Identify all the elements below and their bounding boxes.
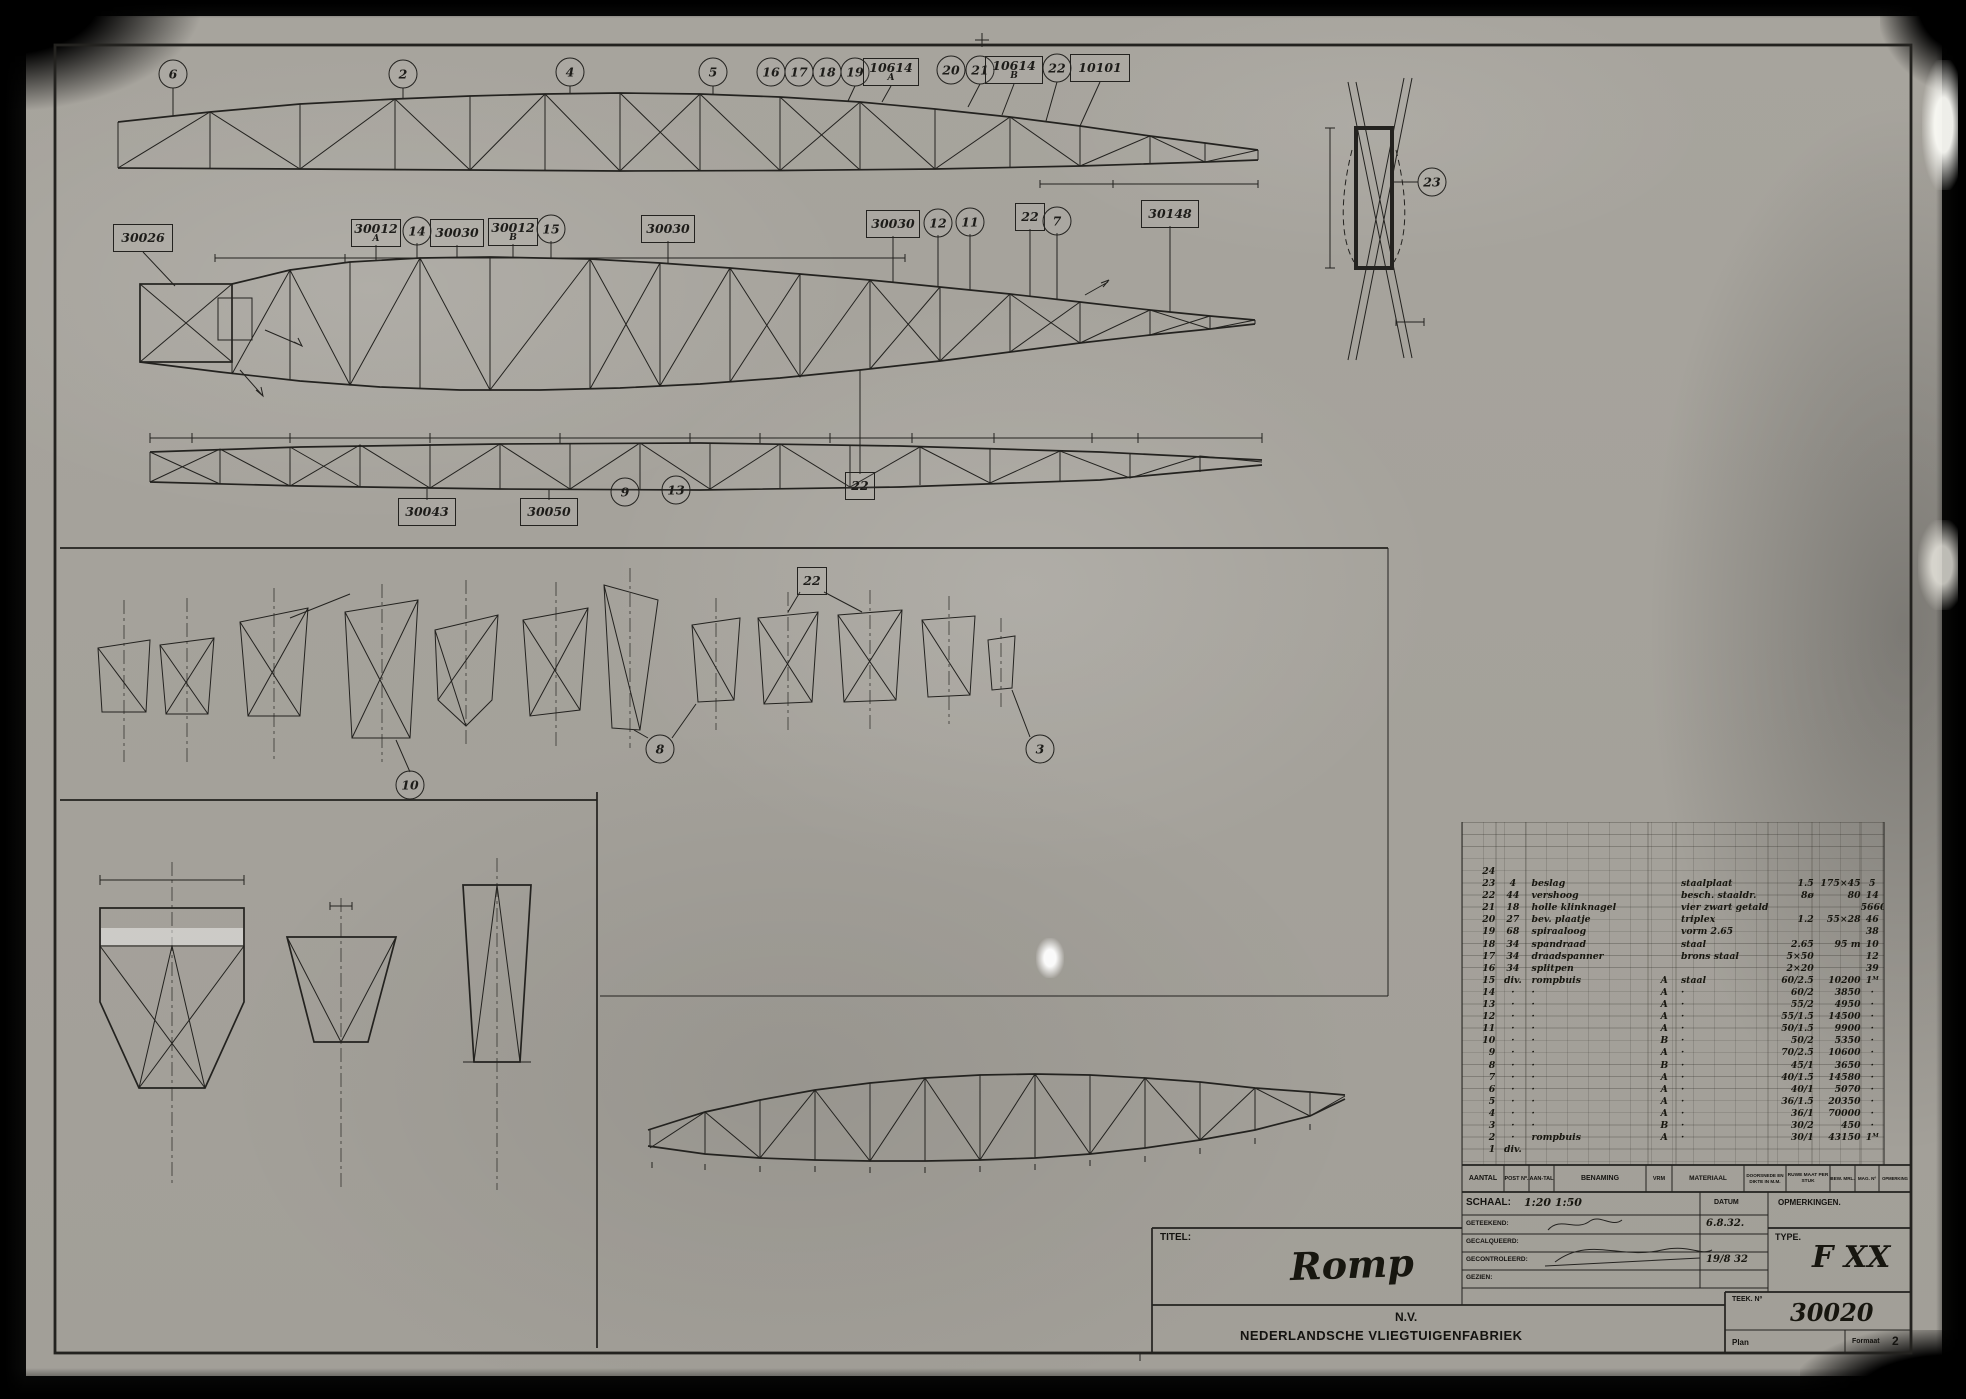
cell-benaming: bev. plaatje bbox=[1527, 914, 1650, 926]
cell-ruwe-maat: 9900 bbox=[1814, 1023, 1861, 1035]
part-callout: 30050 bbox=[520, 498, 578, 526]
cell-vorm bbox=[1651, 890, 1678, 902]
part-callout: 10614 A bbox=[863, 58, 919, 86]
cell-vorm: A bbox=[1651, 1047, 1678, 1059]
callout-number: 22 bbox=[851, 480, 868, 492]
cell-benaming: · bbox=[1527, 1108, 1650, 1120]
type-label: TYPE. bbox=[1775, 1232, 1801, 1242]
cell-ruwe-maat: 450 bbox=[1814, 1120, 1861, 1132]
cell-mag-no: · bbox=[1861, 1108, 1884, 1120]
cell-materiaal: staalplaat bbox=[1678, 878, 1771, 890]
callout-number: 7 bbox=[1053, 215, 1062, 227]
cell-mag-no: · bbox=[1861, 1084, 1884, 1096]
cell-post-no: 22 bbox=[1462, 890, 1498, 902]
part-callout: 18 bbox=[813, 58, 842, 87]
cell-mag-no bbox=[1861, 866, 1884, 878]
truss-plan-view bbox=[150, 433, 1262, 490]
cell-aantal: · bbox=[1498, 1072, 1527, 1084]
callout-number: 8 bbox=[656, 743, 665, 755]
cell-doorsnede: 2×20 bbox=[1771, 963, 1814, 975]
cell-doorsnede: 8ø bbox=[1771, 890, 1814, 902]
cell-post-no: 9 bbox=[1462, 1047, 1498, 1059]
cell-benaming: · bbox=[1527, 1072, 1650, 1084]
part-callout: 16 bbox=[757, 58, 786, 87]
callout-number: 17 bbox=[790, 66, 807, 78]
callout-suffix: B bbox=[1010, 72, 1018, 80]
cell-materiaal: besch. staaldr. bbox=[1678, 890, 1771, 902]
cell-aantal bbox=[1498, 866, 1527, 878]
table-row: 19 68 spiraaloog vorm 2.65 38 bbox=[1462, 926, 1884, 938]
cell-post-no: 11 bbox=[1462, 1023, 1498, 1035]
cell-benaming: · bbox=[1527, 1120, 1650, 1132]
cell-benaming: rompbuis bbox=[1527, 975, 1650, 987]
cell-mag-no: · bbox=[1861, 999, 1884, 1011]
col-header: MAG. Nº bbox=[1855, 1165, 1879, 1192]
cell-ruwe-maat bbox=[1814, 963, 1861, 975]
cell-aantal: 44 bbox=[1498, 890, 1527, 902]
cell-vorm: A bbox=[1651, 1108, 1678, 1120]
cell-vorm: A bbox=[1651, 1096, 1678, 1108]
callout-number: 10 bbox=[401, 779, 418, 791]
cell-materiaal bbox=[1678, 1144, 1771, 1156]
cell-doorsnede bbox=[1771, 1144, 1814, 1156]
part-callout: 30043 bbox=[398, 498, 456, 526]
table-row: 4 · · A · 36/1 70000 · bbox=[1462, 1108, 1884, 1120]
cell-aantal: · bbox=[1498, 1120, 1527, 1132]
cell-post-no: 5 bbox=[1462, 1096, 1498, 1108]
callout-number: 4 bbox=[566, 66, 575, 78]
cell-benaming: holle klinknagel bbox=[1527, 902, 1650, 914]
cell-materiaal: · bbox=[1678, 1011, 1771, 1023]
part-callout: 5 bbox=[699, 58, 728, 87]
teek-no-label: TEEK. Nº bbox=[1732, 1296, 1762, 1303]
cell-ruwe-maat bbox=[1814, 902, 1861, 914]
cell-benaming: · bbox=[1527, 1023, 1650, 1035]
cell-doorsnede bbox=[1771, 902, 1814, 914]
cell-ruwe-maat: 80 bbox=[1814, 890, 1861, 902]
cell-aantal: div. bbox=[1498, 1144, 1527, 1156]
cell-mag-no: 38 bbox=[1861, 926, 1884, 938]
cell-mag-no: · bbox=[1861, 1011, 1884, 1023]
gecalqueerd-label: GECALQUEERD: bbox=[1466, 1238, 1519, 1245]
part-callout: 22 bbox=[1015, 203, 1045, 231]
cell-materiaal: staal bbox=[1678, 975, 1771, 987]
cell-aantal: · bbox=[1498, 1096, 1527, 1108]
table-row: 1 div. bbox=[1462, 1144, 1884, 1156]
callout-number: 23 bbox=[1423, 176, 1440, 188]
callout-number: 30043 bbox=[405, 506, 449, 518]
parts-table: 24 23 4 beslag staalplaat 1.5 175×45 5 2… bbox=[1462, 866, 1884, 1156]
cell-post-no: 10 bbox=[1462, 1035, 1498, 1047]
part-callout: 17 bbox=[785, 58, 814, 87]
cell-mag-no: 5660 bbox=[1861, 902, 1884, 914]
col-header: MATERIAAL bbox=[1672, 1165, 1744, 1192]
cell-ruwe-maat bbox=[1814, 1144, 1861, 1156]
cell-materiaal: · bbox=[1678, 1060, 1771, 1072]
callout-number: 15 bbox=[542, 223, 559, 235]
part-callout: 30030 bbox=[866, 210, 920, 238]
cell-benaming: · bbox=[1527, 1011, 1650, 1023]
callout-number: 19 bbox=[846, 66, 863, 78]
table-row: 5 · · A · 36/1.5 20350 · bbox=[1462, 1096, 1884, 1108]
cell-post-no: 23 bbox=[1462, 878, 1498, 890]
cell-post-no: 3 bbox=[1462, 1120, 1498, 1132]
callout-suffix: B bbox=[509, 234, 517, 242]
cell-post-no: 19 bbox=[1462, 926, 1498, 938]
titel-value: Romp bbox=[1289, 1240, 1414, 1289]
callout-number: 30030 bbox=[646, 223, 690, 235]
cell-vorm bbox=[1651, 914, 1678, 926]
part-callout: 30012 A bbox=[351, 219, 401, 247]
table-row: 21 18 holle klinknagel vier zwart getald… bbox=[1462, 902, 1884, 914]
callout-number: 30030 bbox=[871, 218, 915, 230]
cell-doorsnede bbox=[1771, 926, 1814, 938]
cell-mag-no: 14 bbox=[1861, 890, 1884, 902]
cell-post-no: 13 bbox=[1462, 999, 1498, 1011]
cell-materiaal: · bbox=[1678, 1084, 1771, 1096]
part-callout: 9 bbox=[611, 478, 640, 507]
callout-number: 30050 bbox=[527, 506, 571, 518]
cell-benaming bbox=[1527, 1144, 1650, 1156]
cell-doorsnede: 55/1.5 bbox=[1771, 1011, 1814, 1023]
part-callout: 30012 B bbox=[488, 218, 538, 246]
cell-materiaal bbox=[1678, 963, 1771, 975]
part-callout: 2 bbox=[389, 60, 418, 89]
cell-vorm bbox=[1651, 1144, 1678, 1156]
part-callout: 3 bbox=[1026, 735, 1055, 764]
table-row: 17 34 draadspanner brons staal 5×50 12 bbox=[1462, 951, 1884, 963]
cell-aantal: 68 bbox=[1498, 926, 1527, 938]
part-callout: 22 bbox=[845, 472, 875, 500]
cell-aantal: · bbox=[1498, 1132, 1527, 1144]
cell-doorsnede: 70/2.5 bbox=[1771, 1047, 1814, 1059]
callout-number: 5 bbox=[709, 66, 718, 78]
part-callout: 10101 bbox=[1070, 54, 1130, 82]
section-c-spanten bbox=[100, 858, 531, 1190]
cell-benaming: · bbox=[1527, 1035, 1650, 1047]
cell-ruwe-maat: 10600 bbox=[1814, 1047, 1861, 1059]
cell-benaming: beslag bbox=[1527, 878, 1650, 890]
cell-benaming: splitpen bbox=[1527, 963, 1650, 975]
cell-benaming: · bbox=[1527, 1096, 1650, 1108]
cell-doorsnede: 30/2 bbox=[1771, 1120, 1814, 1132]
cell-ruwe-maat: 3650 bbox=[1814, 1060, 1861, 1072]
part-callout: 23 bbox=[1418, 168, 1447, 197]
cell-doorsnede: 36/1.5 bbox=[1771, 1096, 1814, 1108]
cell-aantal: 27 bbox=[1498, 914, 1527, 926]
cell-vorm: B bbox=[1651, 1060, 1678, 1072]
callout-number: 18 bbox=[818, 66, 835, 78]
cell-vorm bbox=[1651, 951, 1678, 963]
cell-aantal: · bbox=[1498, 1035, 1527, 1047]
cell-vorm bbox=[1651, 866, 1678, 878]
part-callout: 30030 bbox=[641, 215, 695, 243]
cell-doorsnede: 50/2 bbox=[1771, 1035, 1814, 1047]
truss-main-side-view bbox=[140, 226, 1255, 500]
cell-vorm bbox=[1651, 902, 1678, 914]
callout-suffix: A bbox=[888, 74, 895, 82]
cell-benaming: · bbox=[1527, 987, 1650, 999]
cell-post-no: 21 bbox=[1462, 902, 1498, 914]
cell-aantal: · bbox=[1498, 999, 1527, 1011]
table-row: 15 div. rompbuis A staal 60/2.5 10200 1ᴹ bbox=[1462, 975, 1884, 987]
cell-doorsnede: 1.5 bbox=[1771, 878, 1814, 890]
col-header: OPMERKING bbox=[1879, 1165, 1911, 1192]
photo-background: 24 23 4 beslag staalplaat 1.5 175×45 5 2… bbox=[0, 0, 1966, 1399]
col-header: RUWE MAAT PER STUK bbox=[1786, 1165, 1830, 1192]
part-callout: 20 bbox=[937, 56, 966, 85]
table-row: 18 34 spandraad staal 2.65 95 m 10 bbox=[1462, 939, 1884, 951]
cell-aantal: · bbox=[1498, 987, 1527, 999]
cell-ruwe-maat: 5070 bbox=[1814, 1084, 1861, 1096]
callout-number: 30148 bbox=[1148, 208, 1192, 220]
col-header: BEW. MRL. bbox=[1830, 1165, 1855, 1192]
cell-ruwe-maat: 14500 bbox=[1814, 1011, 1861, 1023]
part-callout: 30026 bbox=[113, 224, 173, 252]
cell-materiaal: triplex bbox=[1678, 914, 1771, 926]
cell-vorm bbox=[1651, 939, 1678, 951]
cell-aantal: 34 bbox=[1498, 963, 1527, 975]
cell-benaming: rompbuis bbox=[1527, 1132, 1650, 1144]
callout-number: 22 bbox=[1048, 62, 1065, 74]
callout-number: 16 bbox=[762, 66, 779, 78]
cell-vorm: A bbox=[1651, 999, 1678, 1011]
callout-number: 9 bbox=[621, 486, 630, 498]
section-b-frames bbox=[98, 568, 1030, 772]
cell-benaming: spandraad bbox=[1527, 939, 1650, 951]
cell-benaming: · bbox=[1527, 1047, 1650, 1059]
cell-benaming: · bbox=[1527, 999, 1650, 1011]
cell-doorsnede: 2.65 bbox=[1771, 939, 1814, 951]
cell-materiaal: vier zwart getald bbox=[1678, 902, 1771, 914]
table-row: 16 34 splitpen 2×20 39 bbox=[1462, 963, 1884, 975]
cell-mag-no: 1ᴹ bbox=[1861, 1132, 1884, 1144]
callout-number: 13 bbox=[667, 484, 684, 496]
table-row: 14 · · A · 60/2 3850 · bbox=[1462, 987, 1884, 999]
cell-mag-no: · bbox=[1861, 1072, 1884, 1084]
schaal-label: SCHAAL: bbox=[1466, 1197, 1511, 1208]
cell-aantal: · bbox=[1498, 1023, 1527, 1035]
table-row: 24 bbox=[1462, 866, 1884, 878]
titel-label: TITEL: bbox=[1160, 1232, 1191, 1243]
cell-post-no: 8 bbox=[1462, 1060, 1498, 1072]
cell-ruwe-maat: 95 m bbox=[1814, 939, 1861, 951]
cell-materiaal: · bbox=[1678, 1047, 1771, 1059]
table-row: 10 · · B · 50/2 5350 · bbox=[1462, 1035, 1884, 1047]
cell-ruwe-maat: 175×45 bbox=[1814, 878, 1861, 890]
cell-benaming: draadspanner bbox=[1527, 951, 1650, 963]
cell-mag-no: 39 bbox=[1861, 963, 1884, 975]
cell-vorm: A bbox=[1651, 1011, 1678, 1023]
table-row: 2 · rompbuis A · 30/1 43150 1ᴹ bbox=[1462, 1132, 1884, 1144]
part-callout: 10 bbox=[396, 771, 425, 800]
cell-mag-no: · bbox=[1861, 1035, 1884, 1047]
cell-materiaal bbox=[1678, 866, 1771, 878]
cell-vorm: A bbox=[1651, 975, 1678, 987]
cell-ruwe-maat: 3850 bbox=[1814, 987, 1861, 999]
cell-vorm: A bbox=[1651, 1132, 1678, 1144]
table-row: 7 · · A · 40/1.5 14580 · bbox=[1462, 1072, 1884, 1084]
col-header: AAN-TAL bbox=[1529, 1165, 1554, 1192]
cell-vorm: B bbox=[1651, 1120, 1678, 1132]
company-name: NEDERLANDSCHE VLIEGTUIGENFABRIEK bbox=[1240, 1328, 1523, 1343]
cell-post-no: 2 bbox=[1462, 1132, 1498, 1144]
cell-vorm bbox=[1651, 878, 1678, 890]
datum-label: DATUM bbox=[1714, 1199, 1739, 1206]
cell-doorsnede: 55/2 bbox=[1771, 999, 1814, 1011]
part-callout: 22 bbox=[1043, 54, 1072, 83]
cell-doorsnede: 50/1.5 bbox=[1771, 1023, 1814, 1035]
truss-top-side-elevation bbox=[118, 82, 1258, 188]
callout-number: 22 bbox=[1021, 211, 1038, 223]
table-row: 11 · · A · 50/1.5 9900 · bbox=[1462, 1023, 1884, 1035]
cell-mag-no: · bbox=[1861, 1060, 1884, 1072]
cell-mag-no: 5 bbox=[1861, 878, 1884, 890]
cell-mag-no: · bbox=[1861, 987, 1884, 999]
plan-label: Plan bbox=[1732, 1338, 1749, 1347]
teek-no-value: 30020 bbox=[1790, 1298, 1874, 1327]
cell-ruwe-maat: 43150 bbox=[1814, 1132, 1861, 1144]
callout-number: 30030 bbox=[435, 227, 479, 239]
cell-doorsnede: 45/1 bbox=[1771, 1060, 1814, 1072]
callout-number: 10101 bbox=[1078, 62, 1122, 74]
opmerkingen-label: OPMERKINGEN. bbox=[1778, 1198, 1841, 1207]
cell-aantal: 4 bbox=[1498, 878, 1527, 890]
cell-ruwe-maat: 14580 bbox=[1814, 1072, 1861, 1084]
formaat-label: Formaat bbox=[1852, 1338, 1880, 1345]
cell-materiaal: · bbox=[1678, 1096, 1771, 1108]
part-callout: 13 bbox=[662, 476, 691, 505]
part-callout: 30030 bbox=[430, 219, 484, 247]
cell-post-no: 16 bbox=[1462, 963, 1498, 975]
type-value: F XX bbox=[1812, 1240, 1890, 1275]
table-row: 20 27 bev. plaatje triplex 1.2 55×28 46 bbox=[1462, 914, 1884, 926]
cell-mag-no: 46 bbox=[1861, 914, 1884, 926]
cell-mag-no bbox=[1861, 1144, 1884, 1156]
cell-materiaal: · bbox=[1678, 999, 1771, 1011]
callout-number: 12 bbox=[929, 217, 946, 229]
cell-doorsnede: 40/1.5 bbox=[1771, 1072, 1814, 1084]
part-callout: 7 bbox=[1043, 207, 1072, 236]
formaat-value: 2 bbox=[1892, 1334, 1899, 1348]
cell-benaming: · bbox=[1527, 1060, 1650, 1072]
cell-vorm: A bbox=[1651, 1072, 1678, 1084]
cell-ruwe-maat: 55×28 bbox=[1814, 914, 1861, 926]
cell-doorsnede bbox=[1771, 866, 1814, 878]
cell-vorm: A bbox=[1651, 1023, 1678, 1035]
callout-number: 6 bbox=[169, 68, 178, 80]
cell-post-no: 4 bbox=[1462, 1108, 1498, 1120]
cell-materiaal: · bbox=[1678, 1132, 1771, 1144]
table-row: 8 · · B · 45/1 3650 · bbox=[1462, 1060, 1884, 1072]
cell-doorsnede: 1.2 bbox=[1771, 914, 1814, 926]
callout-number: 2 bbox=[399, 68, 408, 80]
cell-materiaal: · bbox=[1678, 1120, 1771, 1132]
cell-benaming: spiraaloog bbox=[1527, 926, 1650, 938]
table-row: 22 44 vershoog besch. staaldr. 8ø 80 14 bbox=[1462, 890, 1884, 902]
cell-doorsnede: 60/2 bbox=[1771, 987, 1814, 999]
cell-doorsnede: 40/1 bbox=[1771, 1084, 1814, 1096]
callout-number: 3 bbox=[1036, 743, 1045, 755]
cell-post-no: 20 bbox=[1462, 914, 1498, 926]
gezien-label: GEZIEN: bbox=[1466, 1274, 1492, 1281]
cell-post-no: 18 bbox=[1462, 939, 1498, 951]
cell-aantal: div. bbox=[1498, 975, 1527, 987]
part-callout: 15 bbox=[537, 215, 566, 244]
cell-ruwe-maat: 20350 bbox=[1814, 1096, 1861, 1108]
cell-materiaal: · bbox=[1678, 1072, 1771, 1084]
cell-ruwe-maat bbox=[1814, 951, 1861, 963]
cell-doorsnede: 5×50 bbox=[1771, 951, 1814, 963]
table-row: 6 · · A · 40/1 5070 · bbox=[1462, 1084, 1884, 1096]
cell-mag-no: 1ᴹ bbox=[1861, 975, 1884, 987]
cell-materiaal: · bbox=[1678, 1035, 1771, 1047]
cell-vorm: A bbox=[1651, 1084, 1678, 1096]
cell-doorsnede: 30/1 bbox=[1771, 1132, 1814, 1144]
part-callout: 12 bbox=[924, 209, 953, 238]
cell-mag-no: 12 bbox=[1861, 951, 1884, 963]
cell-mag-no: · bbox=[1861, 1120, 1884, 1132]
cell-aantal: 18 bbox=[1498, 902, 1527, 914]
part-callout: 10614 B bbox=[985, 56, 1043, 84]
section-d-flattened-side bbox=[648, 1074, 1345, 1173]
cell-ruwe-maat: 5350 bbox=[1814, 1035, 1861, 1047]
parts-table-header: AANTAL POST Nº. AAN-TAL BENAMING VRM MAT… bbox=[1462, 1165, 1911, 1192]
cell-ruwe-maat bbox=[1814, 926, 1861, 938]
gecontroleerd-date: 19/8 32 bbox=[1706, 1254, 1748, 1265]
cell-post-no: 6 bbox=[1462, 1084, 1498, 1096]
cell-aantal: · bbox=[1498, 1108, 1527, 1120]
cell-materiaal: · bbox=[1678, 1023, 1771, 1035]
cell-post-no: 24 bbox=[1462, 866, 1498, 878]
company-nv: N.V. bbox=[1395, 1310, 1417, 1324]
cell-aantal: · bbox=[1498, 1047, 1527, 1059]
callout-number: 22 bbox=[803, 575, 820, 587]
col-header: VRM bbox=[1646, 1165, 1672, 1192]
cell-materiaal: brons staal bbox=[1678, 951, 1771, 963]
callout-suffix: A bbox=[373, 235, 380, 243]
cell-vorm: A bbox=[1651, 987, 1678, 999]
geteekend-date: 6.8.32. bbox=[1706, 1218, 1744, 1229]
callout-number: 30026 bbox=[121, 232, 165, 244]
cell-aantal: · bbox=[1498, 1060, 1527, 1072]
cell-aantal: 34 bbox=[1498, 951, 1527, 963]
cell-materiaal: vorm 2.65 bbox=[1678, 926, 1771, 938]
cell-post-no: 15 bbox=[1462, 975, 1498, 987]
cell-post-no: 12 bbox=[1462, 1011, 1498, 1023]
gecontroleerd-label: GECONTROLEERD: bbox=[1466, 1256, 1528, 1263]
part-callout: 4 bbox=[556, 58, 585, 87]
cell-ruwe-maat: 4950 bbox=[1814, 999, 1861, 1011]
col-header: AANTAL bbox=[1462, 1165, 1504, 1192]
cell-aantal: 34 bbox=[1498, 939, 1527, 951]
part-callout: 8 bbox=[646, 735, 675, 764]
cell-vorm bbox=[1651, 963, 1678, 975]
cell-aantal: · bbox=[1498, 1011, 1527, 1023]
cell-vorm: B bbox=[1651, 1035, 1678, 1047]
part-callout: 14 bbox=[403, 217, 432, 246]
table-row: 12 · · A · 55/1.5 14500 · bbox=[1462, 1011, 1884, 1023]
table-row: 3 · · B · 30/2 450 · bbox=[1462, 1120, 1884, 1132]
cell-doorsnede: 36/1 bbox=[1771, 1108, 1814, 1120]
part-callout: 6 bbox=[159, 60, 188, 89]
cell-benaming bbox=[1527, 866, 1650, 878]
cell-post-no: 14 bbox=[1462, 987, 1498, 999]
col-header: BENAMING bbox=[1554, 1165, 1646, 1192]
cell-aantal: · bbox=[1498, 1084, 1527, 1096]
part-callout: 30148 bbox=[1141, 200, 1199, 228]
cell-materiaal: · bbox=[1678, 987, 1771, 999]
